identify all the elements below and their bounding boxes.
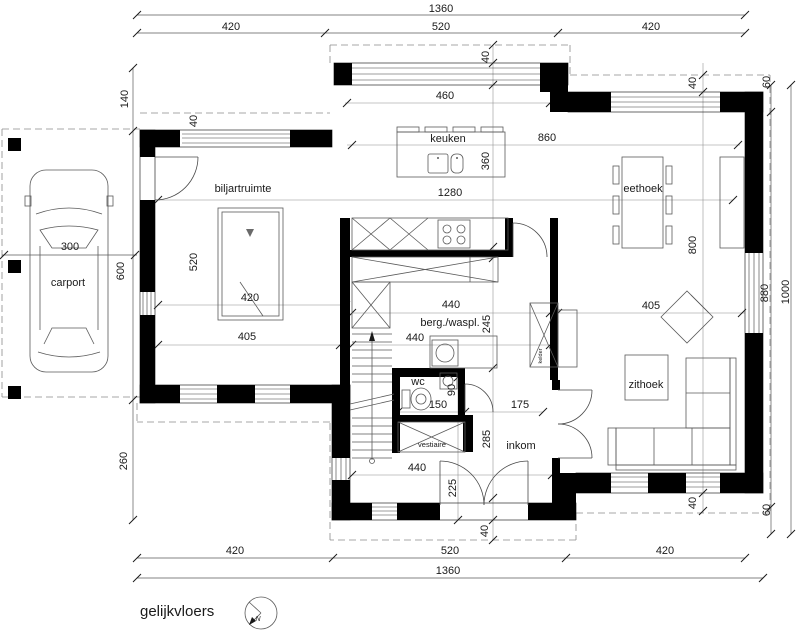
room-label-cloak: vestiaire — [418, 440, 446, 449]
dim-wc-90: 90 — [446, 384, 458, 396]
floorplan-page: carport biljartruimte keuken eethoek ber… — [0, 0, 800, 631]
dim-right-40-bottom: 40 — [687, 497, 699, 509]
kitchen-door — [513, 223, 547, 257]
dim-right-60-top: 60 — [761, 76, 773, 88]
dim-left-600: 600 — [115, 262, 127, 280]
stairs — [350, 331, 394, 464]
dining-table — [613, 157, 672, 248]
dim-top-right: 420 — [642, 21, 660, 33]
dim-storage-245: 245 — [481, 315, 493, 333]
floor-title: gelijkvloers — [140, 603, 214, 620]
coffee-table — [625, 355, 668, 400]
dim-bottom-40: 40 — [479, 525, 491, 537]
dim-storage-440-lower: 440 — [406, 332, 424, 344]
dim-left-260: 260 — [118, 452, 130, 470]
dim-hall-440: 440 — [408, 462, 426, 474]
wc-door — [465, 384, 493, 412]
north-arrow-icon: N — [245, 597, 277, 629]
side-door — [155, 157, 198, 200]
dim-bottom-right: 420 — [656, 545, 674, 557]
room-label-sitting: zithoek — [629, 379, 664, 391]
dim-kitchen-360: 360 — [480, 152, 492, 170]
room-label-storage: berg./waspl. — [420, 317, 479, 329]
dim-entry-225: 225 — [447, 479, 459, 497]
dim-storage-440-upper: 440 — [442, 299, 460, 311]
kitchen-counter — [352, 218, 508, 250]
dim-top-left: 420 — [222, 21, 240, 33]
dim-living-800: 800 — [687, 236, 699, 254]
walls — [8, 63, 763, 520]
floorplan-drawing: carport biljartruimte keuken eethoek ber… — [0, 0, 800, 631]
dim-interior-1280: 1280 — [438, 187, 462, 199]
stairs-direction-arrow — [369, 331, 375, 341]
room-label-dining: eethoek — [623, 183, 663, 195]
dim-bottom-total: 1360 — [436, 565, 460, 577]
dim-right-880: 880 — [759, 284, 771, 302]
room-label-wc: wc — [410, 376, 425, 388]
washing-machine — [430, 336, 497, 368]
dim-right-40-top: 40 — [687, 77, 699, 89]
title-block: gelijkvloers N — [140, 597, 277, 629]
dim-top-mid: 520 — [432, 21, 450, 33]
wall-bands — [140, 63, 763, 520]
car-top-view — [25, 170, 113, 372]
sofa — [608, 358, 736, 470]
dim-bottom-mid: 520 — [441, 545, 459, 557]
dim-carport-width: 300 — [61, 241, 79, 253]
dim-billiard-420: 420 — [241, 292, 259, 304]
dim-left-140: 140 — [119, 90, 131, 108]
dim-wc-150: 150 — [429, 399, 447, 411]
dim-living-405: 405 — [642, 300, 660, 312]
room-label-cellar: kelder — [538, 348, 544, 363]
dim-hall-175: 175 — [511, 399, 529, 411]
dim-top-total: 1360 — [429, 3, 453, 15]
room-label-hall: inkom — [506, 440, 535, 452]
room-label-billiard: biljartruimte — [215, 183, 272, 195]
north-letter: N — [255, 616, 261, 623]
dim-bay-overhang: 40 — [480, 51, 492, 63]
lounge-chair — [661, 291, 713, 343]
living-double-door — [558, 390, 592, 458]
kitchen-wall-cabinets — [397, 127, 503, 132]
dim-billiard-depth: 520 — [188, 253, 200, 271]
dim-left-40: 40 — [188, 115, 200, 127]
dim-hall-285: 285 — [481, 430, 493, 448]
sideboard — [720, 157, 744, 248]
dim-billiard-405: 405 — [238, 331, 256, 343]
room-label-carport: carport — [51, 277, 85, 289]
doors — [155, 157, 592, 505]
toilet — [402, 388, 431, 410]
dim-right-60-bottom: 60 — [761, 504, 773, 516]
room-label-kitchen: keuken — [430, 133, 465, 145]
dim-bottom-left: 420 — [226, 545, 244, 557]
dim-bay-window: 460 — [436, 90, 454, 102]
dim-kitchen-860: 860 — [538, 132, 556, 144]
dim-right-1000: 1000 — [780, 280, 792, 304]
